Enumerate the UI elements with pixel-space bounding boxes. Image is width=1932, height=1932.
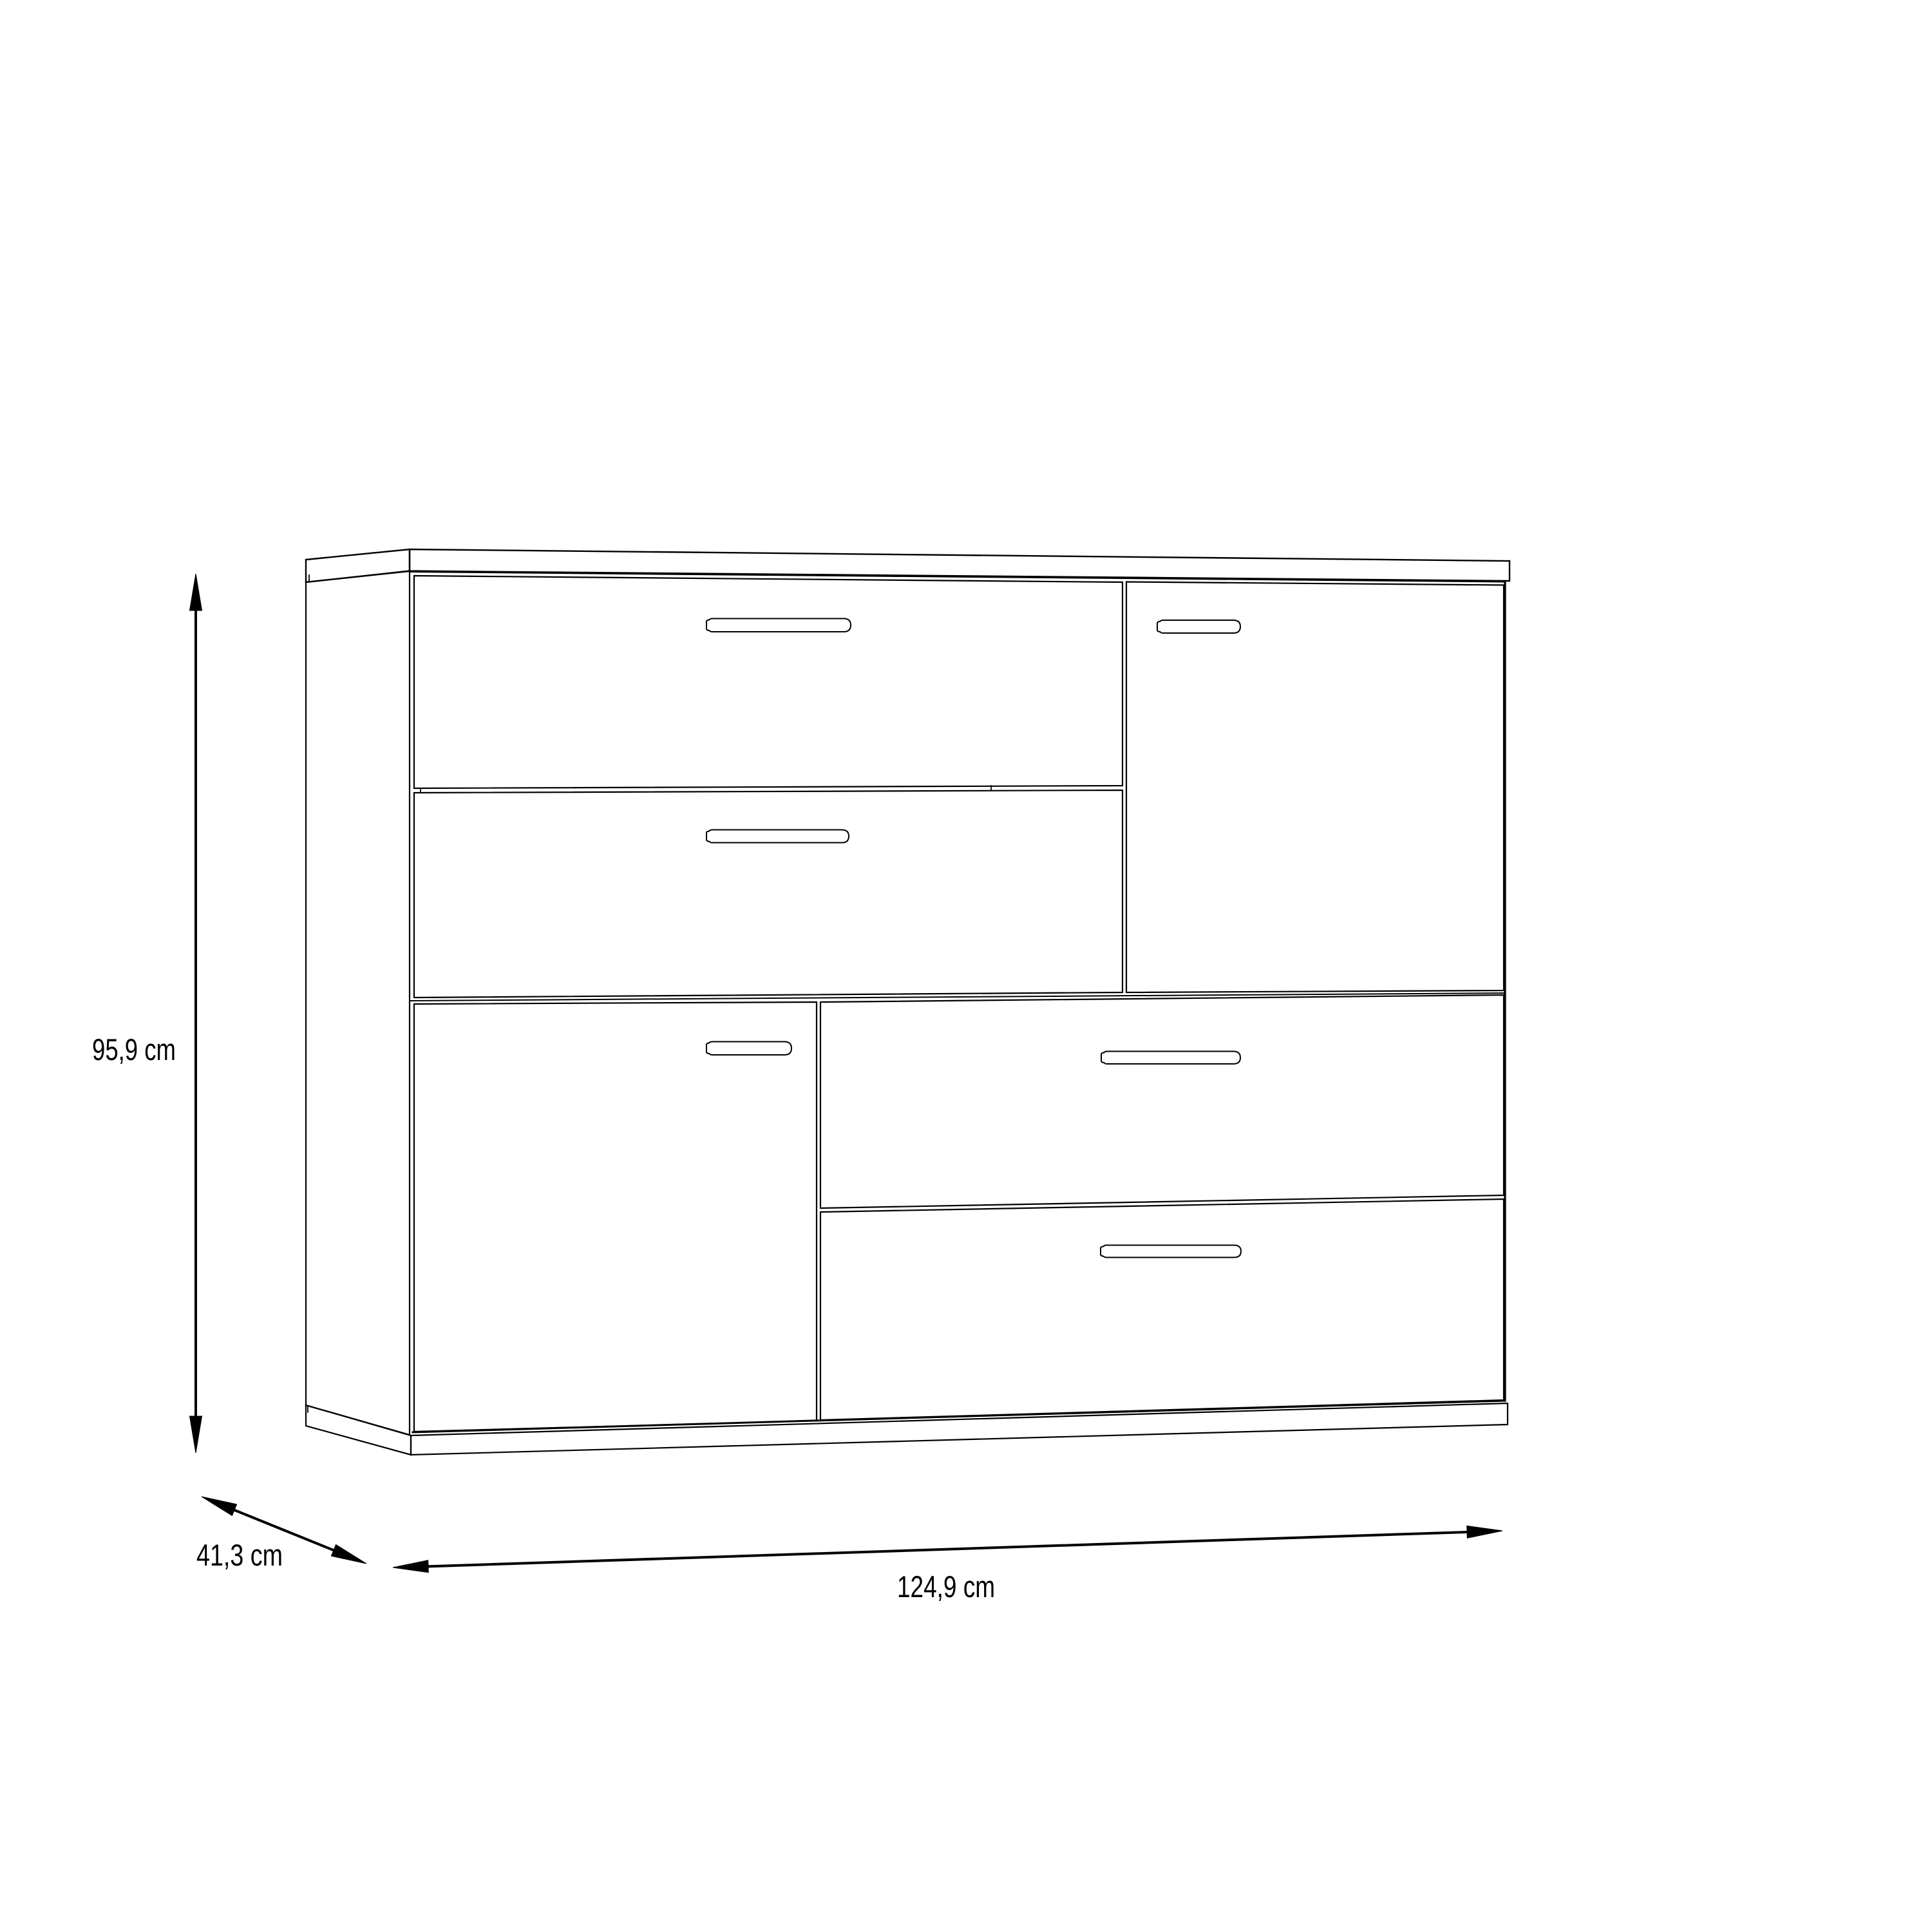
svg-text:95,9 cm: 95,9 cm [92, 1032, 176, 1066]
svg-text:124,9 cm: 124,9 cm [897, 1569, 995, 1604]
svg-text:41,3 cm: 41,3 cm [196, 1538, 283, 1572]
